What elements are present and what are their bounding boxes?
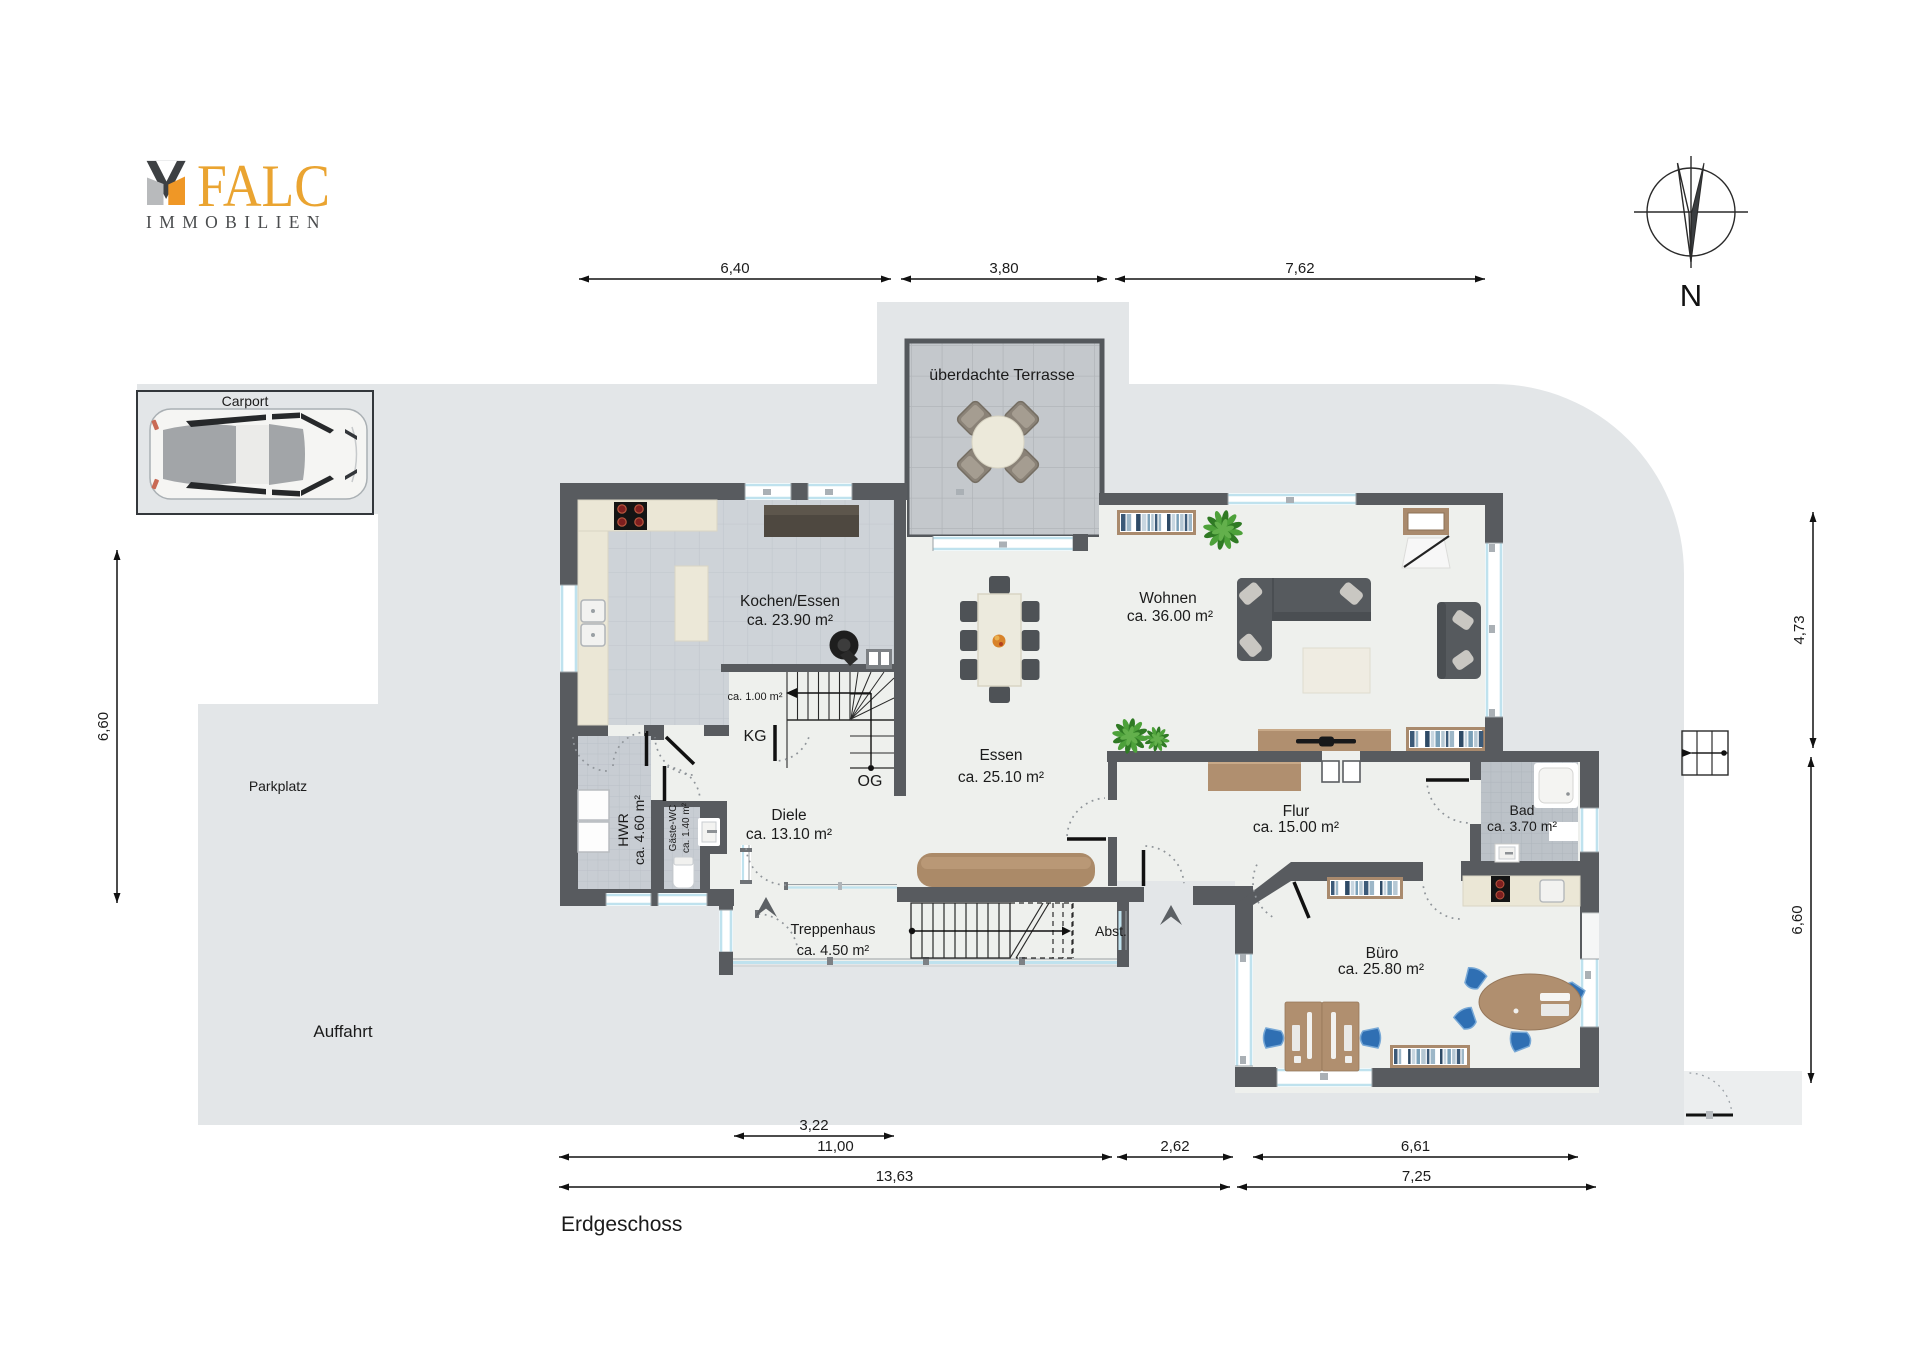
svg-text:3,80: 3,80 bbox=[989, 260, 1018, 277]
svg-text:überdachte Terrasse: überdachte Terrasse bbox=[929, 367, 1075, 384]
svg-text:ca. 4.50 m²: ca. 4.50 m² bbox=[797, 943, 870, 959]
svg-text:Erdgeschoss: Erdgeschoss bbox=[561, 1213, 682, 1236]
svg-text:ca. 4.60 m²: ca. 4.60 m² bbox=[631, 795, 647, 865]
svg-text:ca. 36.00 m²: ca. 36.00 m² bbox=[1127, 608, 1213, 625]
svg-text:Bad: Bad bbox=[1510, 802, 1535, 818]
svg-text:6,60: 6,60 bbox=[1789, 905, 1806, 934]
svg-text:3,22: 3,22 bbox=[799, 1117, 828, 1134]
svg-text:ca. 1.00 m²: ca. 1.00 m² bbox=[727, 691, 782, 703]
svg-text:Essen: Essen bbox=[979, 747, 1022, 764]
svg-text:Flur: Flur bbox=[1283, 803, 1310, 820]
svg-text:13,63: 13,63 bbox=[876, 1168, 914, 1185]
svg-text:FALC: FALC bbox=[197, 153, 330, 219]
svg-text:Auffahrt: Auffahrt bbox=[313, 1022, 373, 1041]
svg-text:7,62: 7,62 bbox=[1285, 260, 1314, 277]
svg-text:ca. 23.90 m²: ca. 23.90 m² bbox=[747, 612, 833, 629]
svg-text:11,00: 11,00 bbox=[817, 1138, 853, 1155]
svg-text:4,73: 4,73 bbox=[1791, 615, 1808, 644]
svg-text:IMMOBILIEN: IMMOBILIEN bbox=[146, 212, 327, 232]
svg-text:Treppenhaus: Treppenhaus bbox=[791, 922, 876, 938]
svg-text:ca. 13.10 m²: ca. 13.10 m² bbox=[746, 826, 832, 843]
svg-text:ca. 25.10 m²: ca. 25.10 m² bbox=[958, 769, 1044, 786]
svg-text:OG: OG bbox=[858, 773, 883, 790]
svg-text:HWR: HWR bbox=[615, 813, 631, 846]
svg-text:ca. 25.80 m²: ca. 25.80 m² bbox=[1338, 961, 1424, 978]
svg-text:Büro: Büro bbox=[1366, 945, 1399, 962]
svg-text:2,62: 2,62 bbox=[1160, 1138, 1189, 1155]
svg-text:Wohnen: Wohnen bbox=[1139, 590, 1196, 607]
svg-text:KG: KG bbox=[743, 728, 766, 745]
svg-text:7,25: 7,25 bbox=[1402, 1168, 1431, 1185]
svg-text:Diele: Diele bbox=[771, 807, 806, 824]
svg-text:6,40: 6,40 bbox=[720, 260, 749, 277]
svg-text:Parkplatz: Parkplatz bbox=[249, 778, 307, 794]
svg-text:N: N bbox=[1680, 278, 1702, 313]
svg-text:ca. 1.40 m²: ca. 1.40 m² bbox=[681, 802, 692, 853]
svg-text:6,60: 6,60 bbox=[95, 712, 112, 741]
svg-text:ca. 3.70 m²: ca. 3.70 m² bbox=[1487, 818, 1557, 834]
svg-text:ca. 15.00 m²: ca. 15.00 m² bbox=[1253, 819, 1339, 836]
svg-text:Abst.: Abst. bbox=[1095, 923, 1127, 939]
svg-text:Gäste-WC: Gäste-WC bbox=[668, 805, 679, 852]
svg-text:Kochen/Essen: Kochen/Essen bbox=[740, 593, 840, 610]
svg-text:Carport: Carport bbox=[222, 393, 269, 409]
svg-text:6,61: 6,61 bbox=[1401, 1138, 1430, 1155]
